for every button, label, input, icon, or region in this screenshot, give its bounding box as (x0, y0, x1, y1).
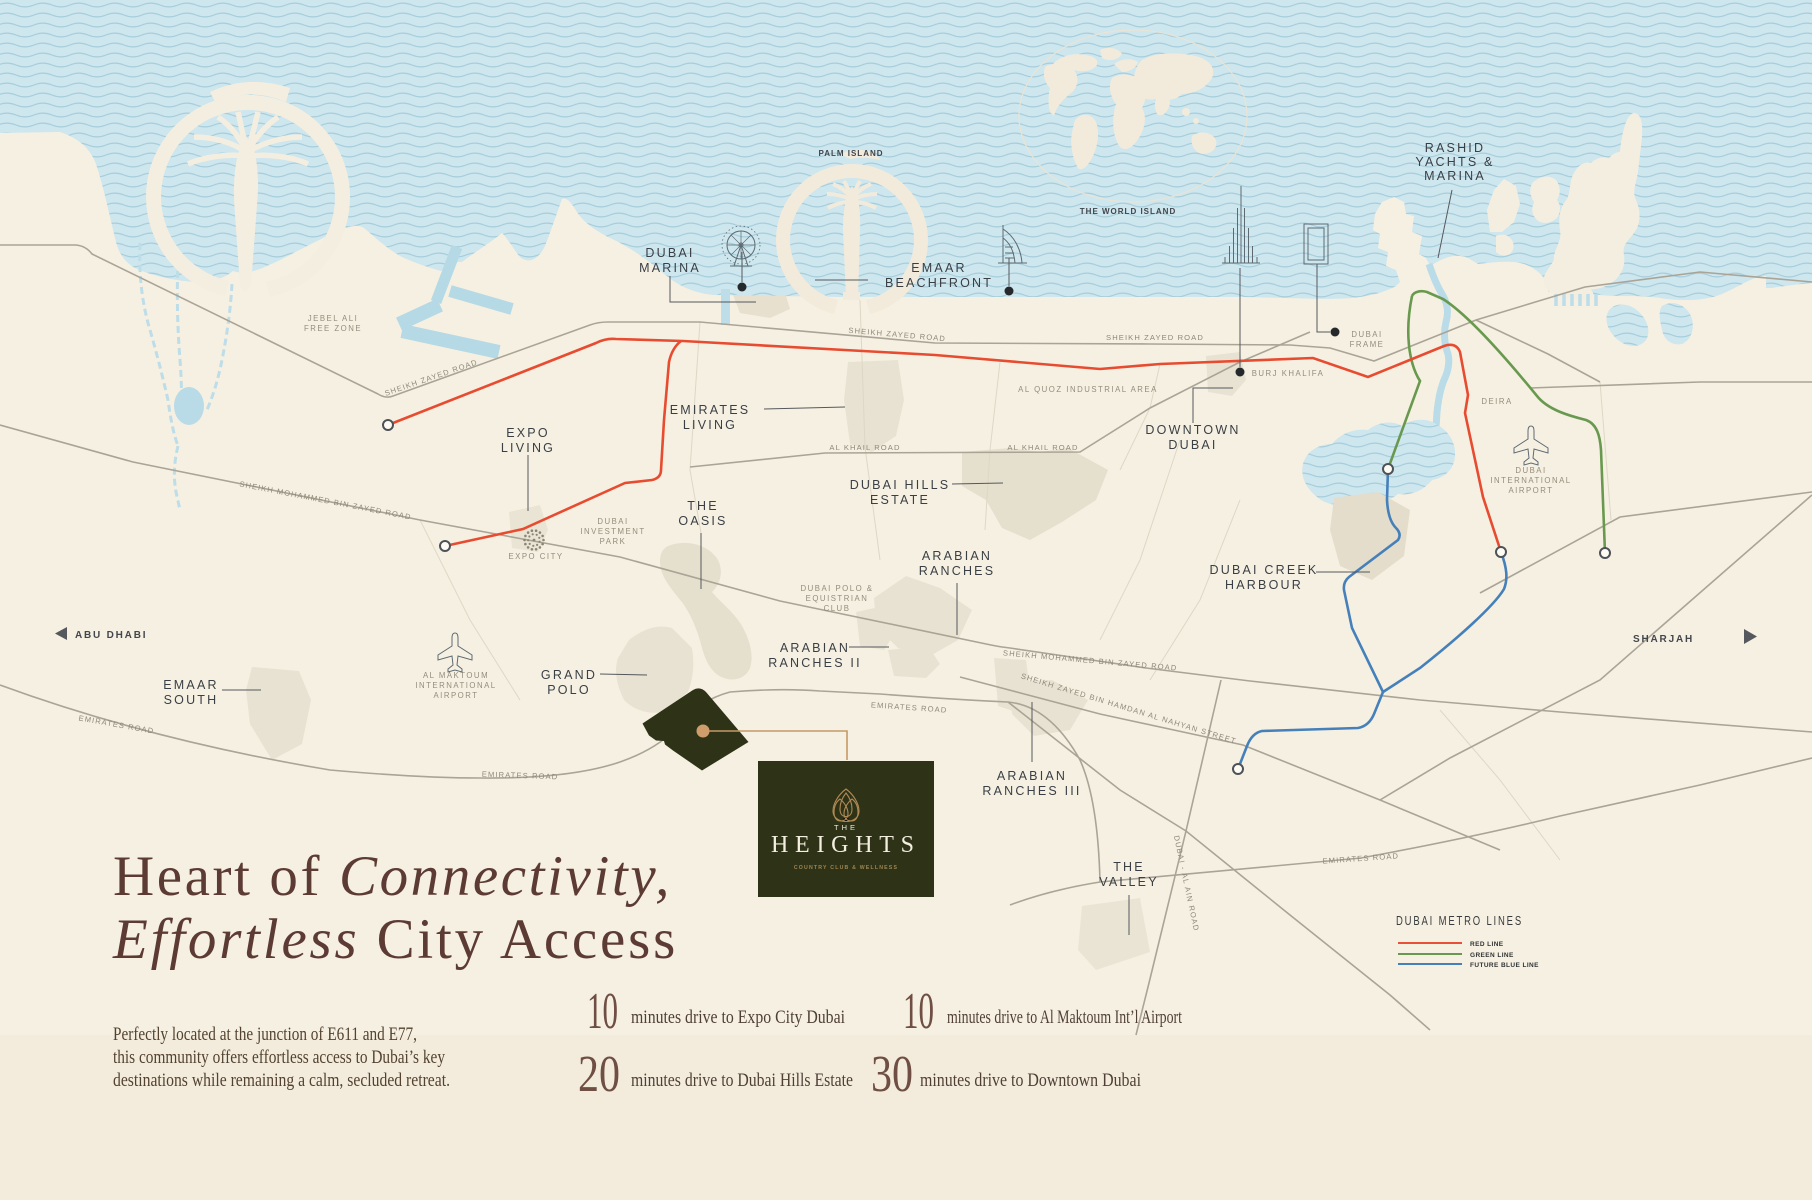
svg-text:MARINA: MARINA (1424, 169, 1486, 183)
svg-text:ESTATE: ESTATE (870, 493, 930, 507)
svg-text:20: 20 (578, 1046, 620, 1103)
svg-text:30: 30 (871, 1046, 913, 1103)
svg-text:RED LINE: RED LINE (1470, 941, 1504, 948)
svg-text:HARBOUR: HARBOUR (1225, 578, 1303, 592)
svg-text:EQUISTRIAN: EQUISTRIAN (806, 594, 869, 603)
svg-text:EXPO CITY: EXPO CITY (508, 552, 563, 561)
svg-text:this community offers effortle: this community offers effortless access … (113, 1047, 445, 1068)
svg-text:DUBAI: DUBAI (645, 246, 694, 260)
svg-text:RANCHES III: RANCHES III (982, 784, 1081, 798)
svg-text:COUNTRY CLUB & WELLNESS: COUNTRY CLUB & WELLNESS (794, 865, 898, 871)
svg-text:AL KHAIL ROAD: AL KHAIL ROAD (1007, 443, 1078, 452)
svg-text:Effortless City Access: Effortless City Access (112, 908, 678, 971)
svg-text:ABU DHABI: ABU DHABI (75, 630, 147, 641)
svg-text:DUBAI HILLS: DUBAI HILLS (850, 478, 951, 492)
svg-text:10: 10 (903, 983, 934, 1040)
svg-text:minutes drive to Al Maktoum In: minutes drive to Al Maktoum Int’l Airpor… (947, 1007, 1183, 1028)
svg-text:EMAAR: EMAAR (163, 678, 218, 692)
svg-text:LIVING: LIVING (683, 418, 737, 432)
svg-text:AL KHAIL ROAD: AL KHAIL ROAD (829, 443, 900, 452)
svg-text:ARABIAN: ARABIAN (780, 641, 850, 655)
svg-text:MARINA: MARINA (639, 261, 701, 275)
svg-text:ARABIAN: ARABIAN (922, 549, 992, 563)
svg-text:OASIS: OASIS (678, 514, 727, 528)
svg-text:RASHID: RASHID (1425, 141, 1485, 155)
svg-text:SHARJAH: SHARJAH (1633, 634, 1694, 645)
svg-text:FRAME: FRAME (1350, 340, 1385, 349)
svg-text:DUBAI: DUBAI (597, 517, 628, 526)
svg-text:GRAND: GRAND (541, 668, 597, 682)
svg-text:EXPO: EXPO (506, 426, 550, 440)
svg-text:DUBAI CREEK: DUBAI CREEK (1210, 563, 1319, 577)
svg-text:AIRPORT: AIRPORT (1508, 486, 1553, 495)
svg-text:PALM ISLAND: PALM ISLAND (818, 149, 883, 158)
svg-text:SOUTH: SOUTH (164, 693, 219, 707)
svg-text:GREEN LINE: GREEN LINE (1470, 952, 1514, 959)
svg-text:ARABIAN: ARABIAN (997, 769, 1067, 783)
svg-text:THE: THE (1113, 860, 1145, 874)
svg-text:10: 10 (587, 983, 618, 1040)
svg-text:AL QUOZ INDUSTRIAL AREA: AL QUOZ INDUSTRIAL AREA (1018, 385, 1158, 394)
svg-text:Heart of Connectivity,: Heart of Connectivity, (113, 845, 672, 908)
svg-text:DUBAI: DUBAI (1515, 466, 1546, 475)
svg-text:Perfectly located at the junct: Perfectly located at the junction of E61… (113, 1024, 417, 1045)
svg-text:DUBAI: DUBAI (1351, 330, 1382, 339)
svg-text:AIRPORT: AIRPORT (433, 691, 478, 700)
svg-text:EMIRATES: EMIRATES (670, 403, 751, 417)
svg-text:INTERNATIONAL: INTERNATIONAL (1490, 476, 1571, 485)
svg-text:minutes drive to Expo City Dub: minutes drive to Expo City Dubai (631, 1007, 845, 1028)
svg-text:DEIRA: DEIRA (1481, 397, 1512, 406)
svg-text:VALLEY: VALLEY (1099, 875, 1159, 889)
svg-text:RANCHES II: RANCHES II (768, 656, 862, 670)
svg-text:JEBEL ALI: JEBEL ALI (308, 314, 359, 323)
svg-text:CLUB: CLUB (824, 604, 851, 613)
svg-text:THE: THE (834, 823, 858, 832)
svg-text:INTERNATIONAL: INTERNATIONAL (415, 681, 496, 690)
svg-text:SHEIKH ZAYED ROAD: SHEIKH ZAYED ROAD (1106, 333, 1204, 342)
svg-text:DOWNTOWN: DOWNTOWN (1145, 423, 1240, 437)
svg-text:minutes drive to Dubai Hills E: minutes drive to Dubai Hills Estate (631, 1070, 853, 1091)
svg-text:THE: THE (687, 499, 719, 513)
svg-text:DUBAI POLO &: DUBAI POLO & (800, 584, 873, 593)
svg-text:BEACHFRONT: BEACHFRONT (885, 276, 993, 290)
svg-text:INVESTMENT: INVESTMENT (580, 527, 645, 536)
svg-text:DUBAI METRO LINES: DUBAI METRO LINES (1396, 914, 1523, 928)
svg-text:EMAAR: EMAAR (911, 261, 966, 275)
svg-text:YACHTS &: YACHTS & (1415, 155, 1494, 169)
svg-text:RANCHES: RANCHES (919, 564, 996, 578)
svg-text:HEIGHTS: HEIGHTS (771, 832, 921, 858)
svg-text:minutes drive to Downtown Duba: minutes drive to Downtown Dubai (920, 1070, 1141, 1091)
svg-text:POLO: POLO (547, 683, 591, 697)
svg-text:BURJ KHALIFA: BURJ KHALIFA (1252, 369, 1325, 378)
svg-text:LIVING: LIVING (501, 441, 555, 455)
svg-text:PARK: PARK (600, 537, 627, 546)
svg-text:destinations while remaining a: destinations while remaining a calm, sec… (113, 1070, 450, 1091)
svg-text:FREE ZONE: FREE ZONE (304, 324, 362, 333)
svg-text:AL MAKTOUM: AL MAKTOUM (423, 671, 489, 680)
svg-text:FUTURE BLUE LINE: FUTURE BLUE LINE (1470, 962, 1539, 969)
svg-text:THE WORLD ISLAND: THE WORLD ISLAND (1080, 207, 1176, 216)
svg-text:DUBAI: DUBAI (1168, 438, 1217, 452)
